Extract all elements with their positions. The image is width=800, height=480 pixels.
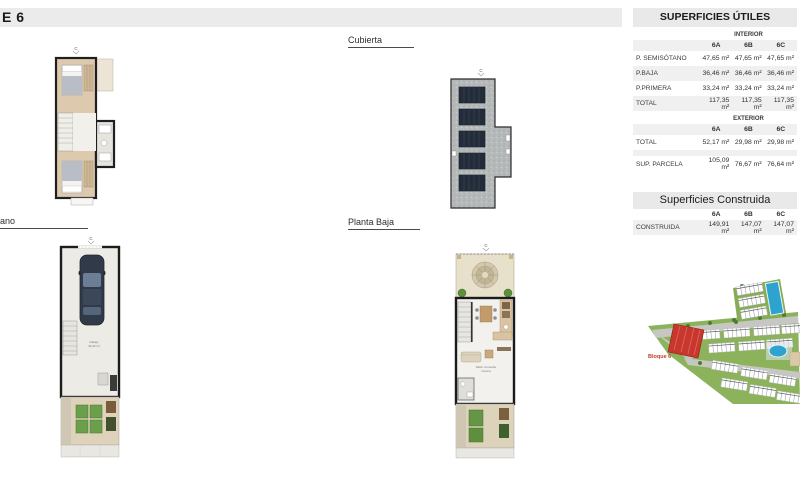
compass-icon xyxy=(478,73,484,76)
title-band: E 6 xyxy=(0,8,622,27)
table-row: TOTAL 52,17 m² 29,98 m² 29,98 m² xyxy=(633,135,797,150)
compass-icon xyxy=(483,248,489,251)
interior-column-headers: 6A 6B 6C xyxy=(633,40,797,51)
floorplan-planta-baja: C Salón Comedor Cocina xyxy=(453,240,519,466)
table-row: P.PRIMERA 33,24 m² 33,24 m² 33,24 m² xyxy=(633,81,797,96)
construida-column-headers: 6A 6B 6C xyxy=(633,209,797,220)
site-plan-map: Bloque 6 xyxy=(638,266,800,404)
page-title: E 6 xyxy=(2,8,25,27)
table-row: P. SEMISÓTANO 47,65 m² 47,65 m² 47,65 m² xyxy=(633,51,797,66)
compass-icon: C xyxy=(479,68,483,73)
cocina-label: Cocina xyxy=(481,369,491,373)
floorplan-cubierta: C xyxy=(448,65,514,211)
garage-area-label: 44,22 m² xyxy=(88,344,100,348)
solar-panels xyxy=(459,87,485,191)
label-planta-baja: Planta Baja xyxy=(348,217,420,230)
compass-icon xyxy=(88,241,94,244)
table-row: TOTAL 117,35 m² 117,35 m² 117,35 m² xyxy=(633,96,797,111)
utiles-title: SUPERFICIES ÚTILES xyxy=(633,8,797,27)
table-row: CONSTRUIDA 149,91 m² 147,07 m² 147,07 m² xyxy=(633,220,797,235)
floorplan-semisotano: C Garaje 44,22 m² xyxy=(58,233,124,466)
bloque-6-label: Bloque 6 xyxy=(648,354,671,360)
label-cubierta: Cubierta xyxy=(348,35,414,48)
floorplan-primera: C xyxy=(53,43,117,207)
bloque-6-highlight xyxy=(668,324,704,358)
exterior-column-headers: 6A 6B 6C xyxy=(633,124,797,135)
surface-tables-panel: SUPERFICIES ÚTILES INTERIOR 6A 6B 6C P. … xyxy=(633,8,797,235)
construida-title: Superficies Construida xyxy=(633,192,797,209)
compass-icon xyxy=(73,51,79,54)
car xyxy=(79,255,106,325)
exterior-section-header: EXTERIOR xyxy=(633,114,797,124)
pool-lower xyxy=(769,345,787,357)
label-semisotano: ano xyxy=(0,216,88,229)
compass-icon: C xyxy=(484,243,488,248)
interior-section-header: INTERIOR xyxy=(633,30,797,40)
table-row: SUP. PARCELA 105,09 m² 76,67 m² 76,64 m² xyxy=(633,156,797,172)
compass-icon: C xyxy=(89,236,93,241)
table-row: P.BAJA 36,46 m² 36,46 m² 36,46 m² xyxy=(633,66,797,81)
compass-icon: C xyxy=(74,46,78,51)
